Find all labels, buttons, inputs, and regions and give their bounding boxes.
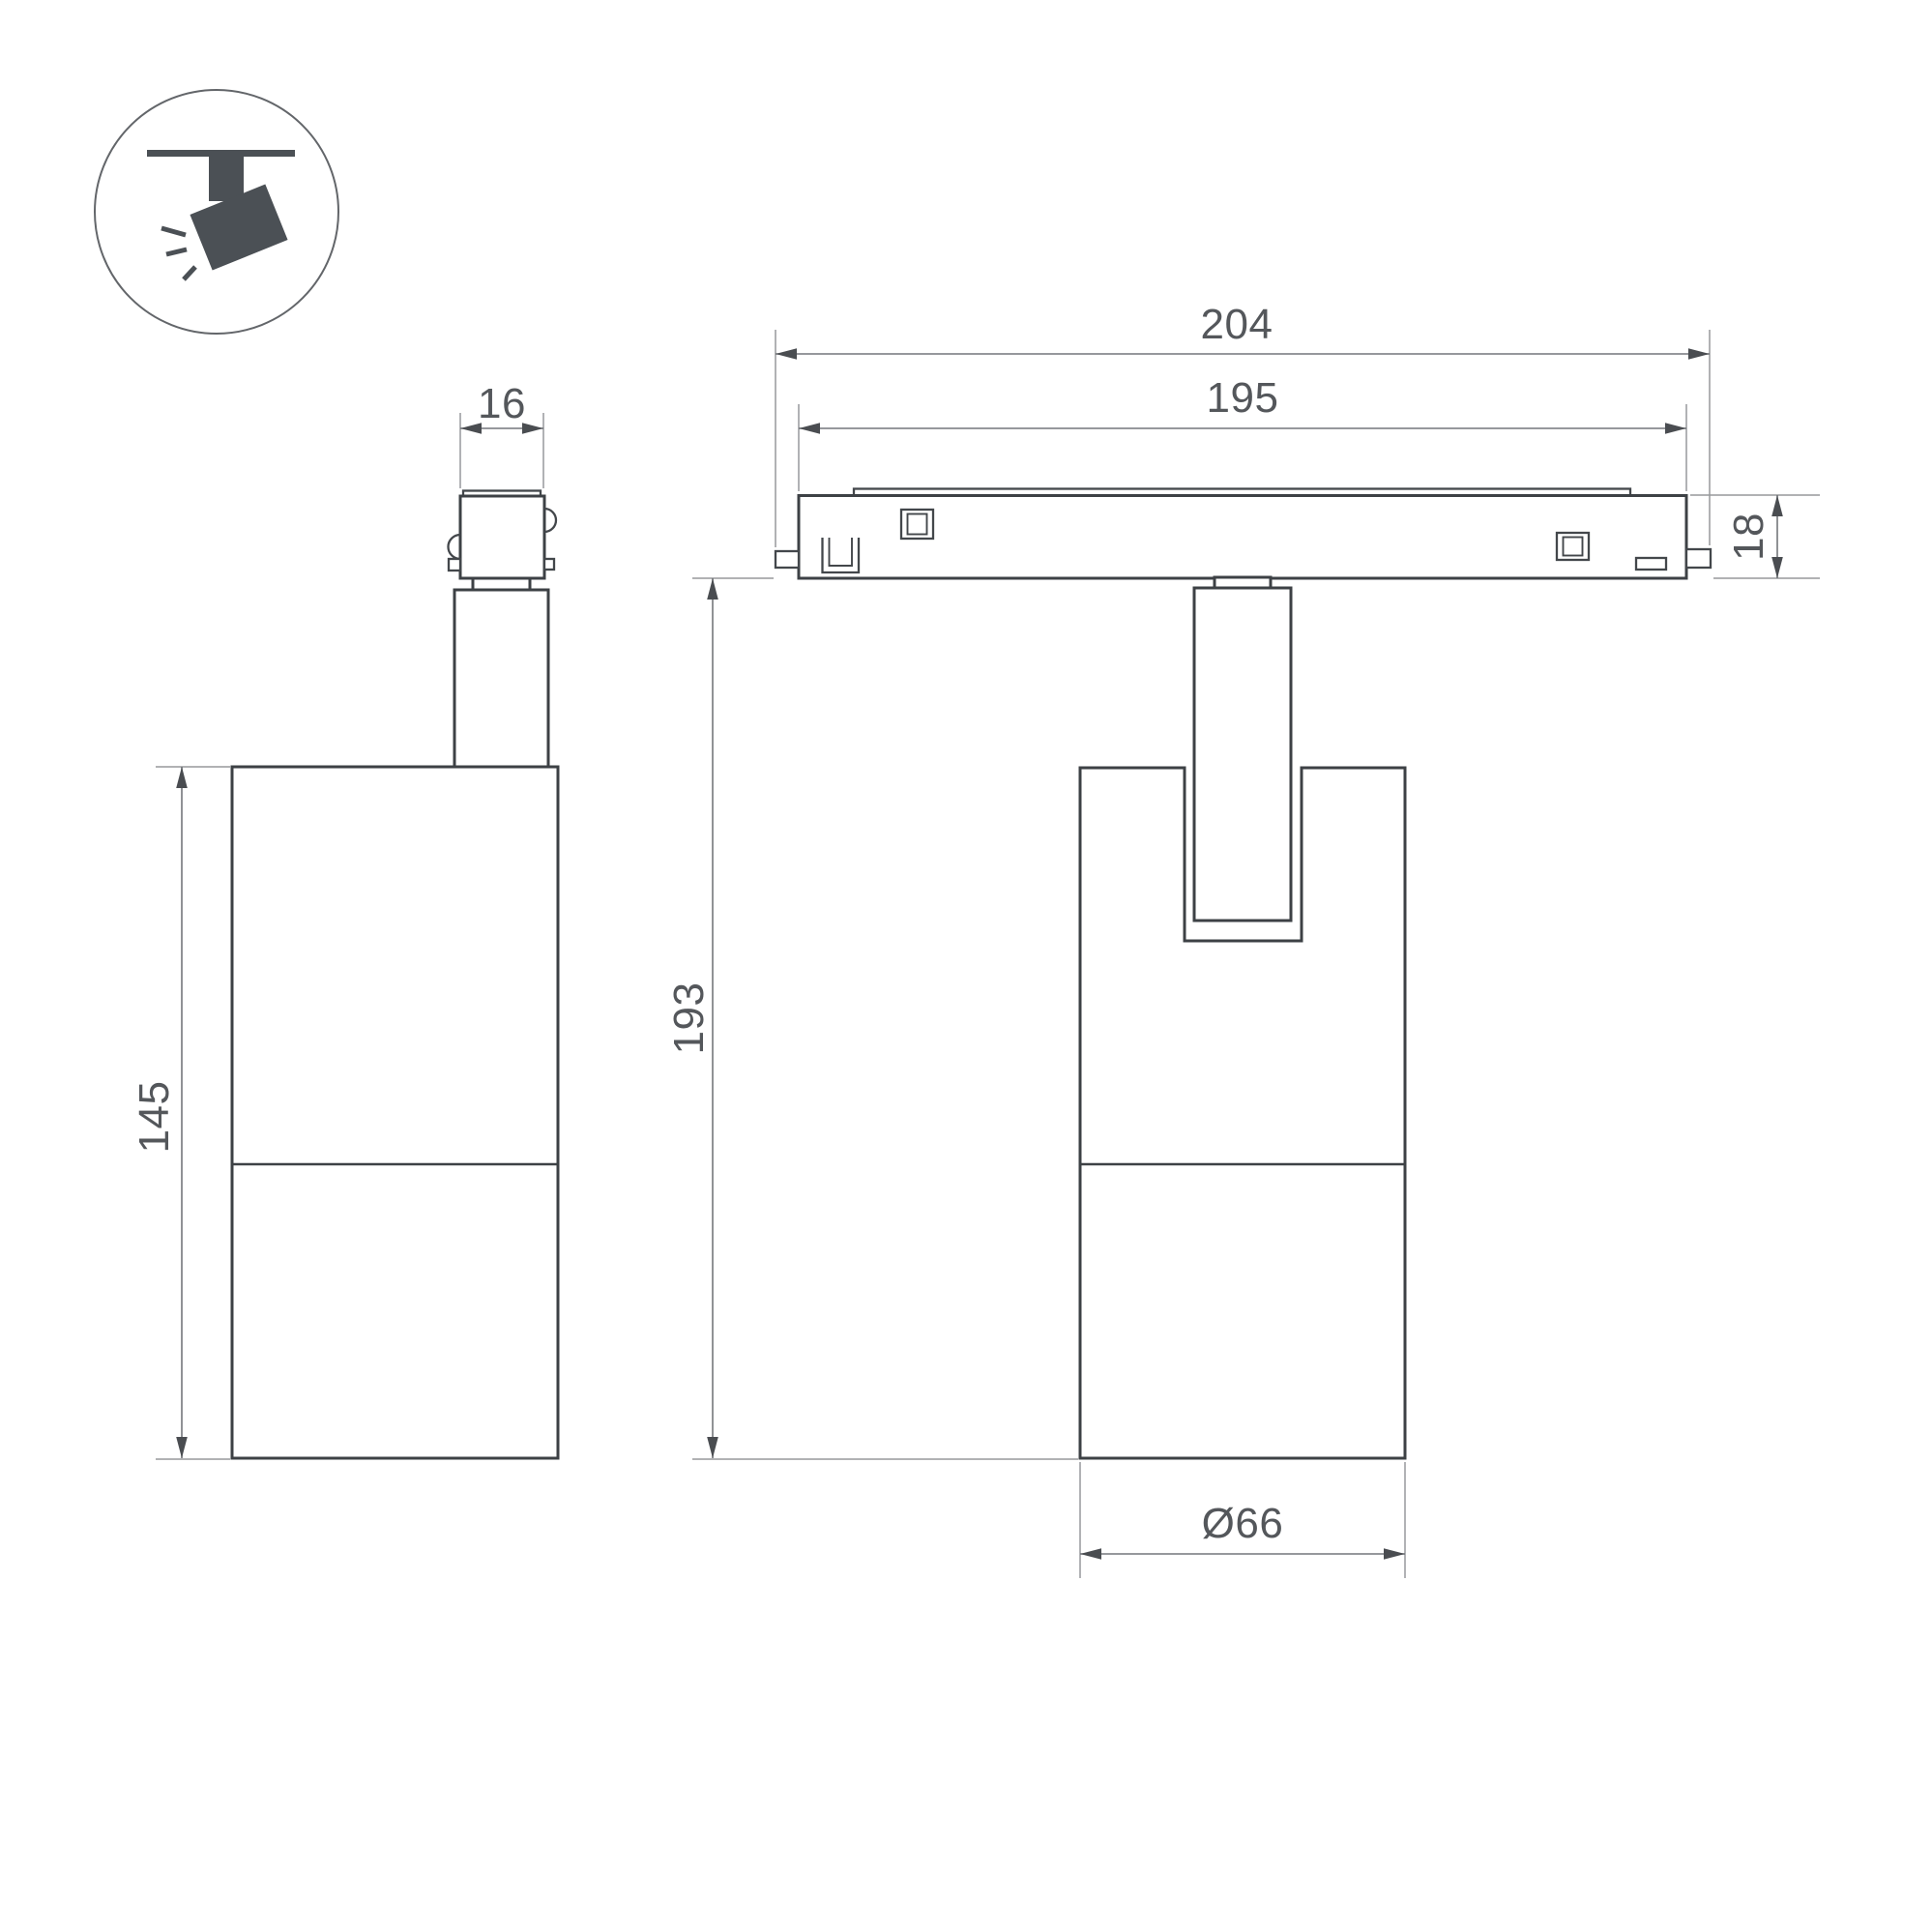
side-lamp-body [232, 767, 558, 1458]
technical-drawing: 204 195 16 18 193 [0, 0, 1932, 1932]
side-latch-ear-left [448, 535, 460, 559]
dim-label-adapter-width: 16 [478, 380, 526, 427]
side-pivot-arm [454, 590, 548, 767]
side-latch-tab-left [449, 559, 460, 571]
side-latch-ear-right [544, 509, 556, 532]
dim-total-height: 193 [665, 578, 1078, 1459]
dim-label-track-body-length: 195 [1207, 374, 1279, 422]
side-neck [473, 578, 530, 590]
dim-label-track-outer-length: 204 [1201, 301, 1273, 348]
icon-mount-stem [209, 153, 244, 201]
front-view [776, 489, 1711, 1459]
dim-body-diameter: Ø66 [1080, 1462, 1405, 1578]
drawing-sheet: 204 195 16 18 193 [0, 0, 1932, 1932]
side-track-adapter [460, 496, 544, 578]
side-latch-tab-right [544, 559, 554, 570]
dim-label-body-height: 145 [131, 1081, 178, 1154]
front-pivot-arm [1194, 588, 1291, 921]
front-track-slot-right [1636, 558, 1666, 570]
dim-body-height: 145 [131, 767, 230, 1459]
dim-label-body-diameter: Ø66 [1202, 1500, 1284, 1547]
icon-light-rays [161, 228, 195, 279]
side-view [232, 491, 558, 1459]
front-track-end-tab-right [1686, 549, 1711, 568]
dim-adapter-width: 16 [460, 380, 543, 488]
spotlight-icon [95, 90, 338, 334]
dim-track-body-length: 195 [799, 374, 1686, 491]
dim-label-total-height: 193 [665, 982, 713, 1055]
icon-lamp-head [190, 185, 287, 271]
front-track-end-tab-left [776, 551, 799, 568]
dim-label-track-height: 18 [1725, 512, 1772, 561]
